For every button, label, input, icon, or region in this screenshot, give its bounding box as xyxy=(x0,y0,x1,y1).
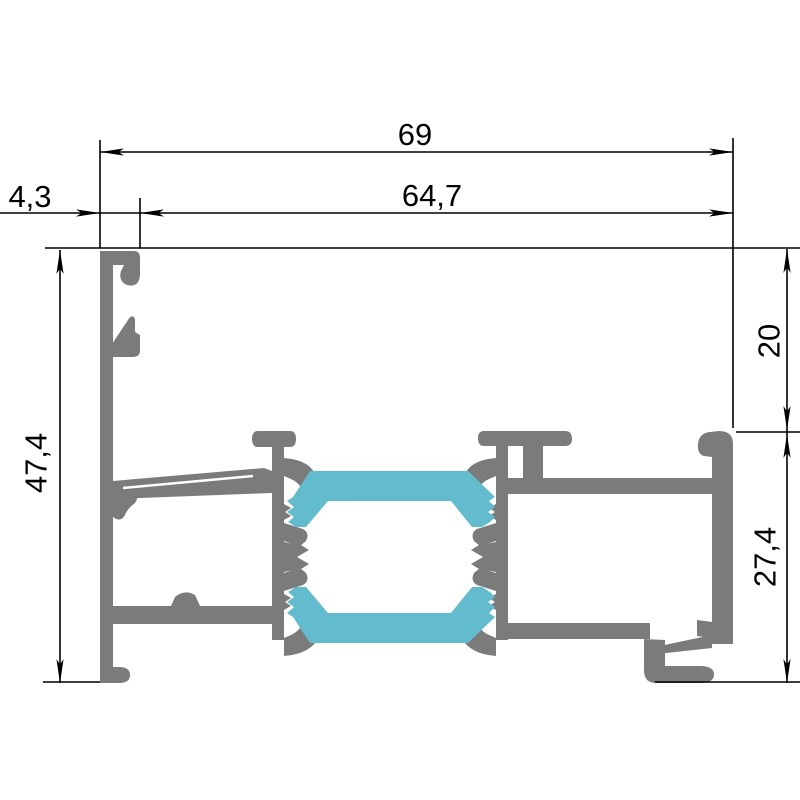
sash-wall-bottom-bump xyxy=(697,620,712,638)
dim-label-height-top: 20 xyxy=(752,324,787,358)
dim-label-width-inner: 64,7 xyxy=(402,178,462,213)
profile-cross-section-drawing: 69 64,7 4,3 47,4 20 27,4 xyxy=(0,0,800,800)
dim-label-height-bottom: 27,4 xyxy=(748,527,783,587)
dim-label-width-total: 69 xyxy=(398,117,432,152)
frame-lower-web xyxy=(113,606,272,624)
groove-top-hook xyxy=(120,265,140,286)
center-t-cap xyxy=(252,431,296,447)
sash-t-cap xyxy=(478,431,572,446)
dim-label-width-wall: 4,3 xyxy=(8,179,51,214)
sash-t-stem xyxy=(523,446,543,480)
sash-top-wall xyxy=(502,478,716,494)
sash-bottom-wall xyxy=(502,623,650,639)
frame-top-cap xyxy=(100,251,140,265)
technical-drawing-canvas: 69 64,7 4,3 47,4 20 27,4 xyxy=(0,0,800,800)
dim-label-height-total: 47,4 xyxy=(19,433,54,493)
